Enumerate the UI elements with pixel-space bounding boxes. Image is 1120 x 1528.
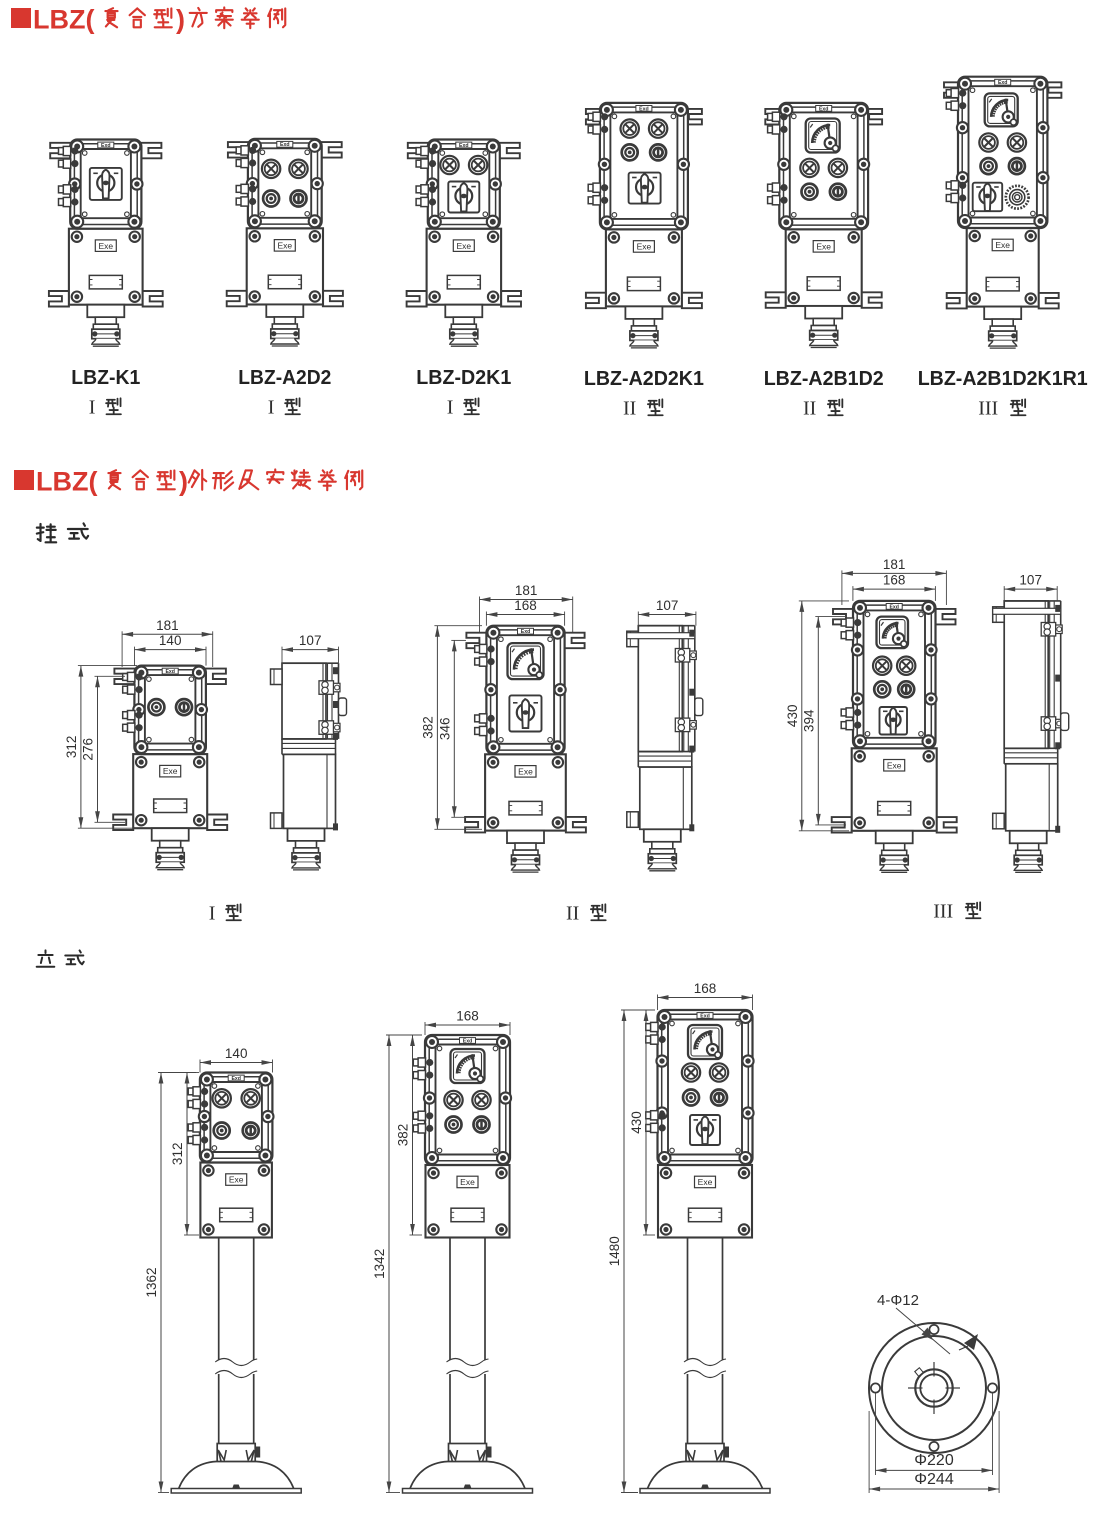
svg-text:Exd: Exd [639, 106, 649, 112]
svg-text:Exd: Exd [280, 142, 290, 148]
svg-text:LBZ(: LBZ( [36, 467, 97, 497]
svg-text:181: 181 [883, 557, 906, 572]
svg-text:430: 430 [785, 705, 800, 728]
svg-text:312: 312 [64, 736, 79, 759]
svg-text:Exe: Exe [456, 241, 471, 251]
svg-text:276: 276 [81, 738, 96, 761]
svg-text:Exd: Exd [165, 669, 175, 675]
svg-text:Exe: Exe [637, 242, 652, 252]
svg-text:346: 346 [437, 718, 452, 741]
svg-text:II: II [803, 398, 816, 420]
svg-text:I: I [268, 397, 275, 419]
svg-text:430: 430 [629, 1111, 644, 1134]
svg-text:4-Φ12: 4-Φ12 [877, 1292, 919, 1309]
svg-text:LBZ-A2D2K1: LBZ-A2D2K1 [584, 367, 704, 390]
svg-text:Exe: Exe [98, 241, 113, 251]
svg-text:312: 312 [170, 1143, 185, 1166]
svg-text:Exe: Exe [816, 241, 831, 251]
svg-text:Exe: Exe [277, 240, 292, 250]
svg-text:III: III [933, 901, 953, 923]
svg-text:168: 168 [514, 598, 537, 613]
svg-text:Exd: Exd [459, 143, 469, 149]
svg-text:Exd: Exd [998, 80, 1008, 86]
svg-text:382: 382 [420, 716, 435, 739]
svg-text:Φ220: Φ220 [914, 1452, 954, 1469]
svg-text:LBZ-A2B1D2: LBZ-A2B1D2 [764, 367, 884, 390]
svg-text:I: I [89, 397, 96, 419]
svg-text:Exd: Exd [819, 106, 829, 112]
svg-text:I: I [209, 903, 216, 925]
svg-text:LBZ-A2D2: LBZ-A2D2 [238, 366, 331, 389]
svg-text:Exe: Exe [887, 760, 902, 770]
svg-text:Exd: Exd [700, 1013, 710, 1019]
svg-text:1362: 1362 [144, 1267, 159, 1297]
svg-text:Exd: Exd [889, 604, 899, 610]
svg-text:Exe: Exe [460, 1177, 475, 1187]
svg-text:1480: 1480 [607, 1236, 622, 1266]
svg-text:Exe: Exe [995, 240, 1010, 250]
svg-text:I: I [447, 397, 454, 419]
svg-text:107: 107 [1019, 573, 1042, 588]
svg-text:): ) [179, 467, 188, 497]
svg-text:140: 140 [159, 633, 182, 648]
svg-text:107: 107 [299, 633, 322, 648]
svg-text:1342: 1342 [372, 1249, 387, 1279]
svg-text:140: 140 [225, 1046, 248, 1061]
svg-text:LBZ-A2B1D2K1R1: LBZ-A2B1D2K1R1 [918, 367, 1088, 390]
svg-text:107: 107 [656, 598, 679, 613]
svg-text:181: 181 [515, 583, 538, 598]
svg-text:LBZ-K1: LBZ-K1 [71, 366, 140, 389]
svg-text:II: II [623, 398, 636, 420]
svg-text:): ) [176, 5, 185, 35]
svg-text:II: II [566, 903, 579, 925]
svg-text:382: 382 [396, 1124, 411, 1147]
svg-text:168: 168 [883, 573, 906, 588]
svg-text:Exe: Exe [698, 1177, 713, 1187]
svg-text:Exd: Exd [231, 1076, 241, 1082]
svg-text:III: III [978, 398, 998, 420]
svg-text:168: 168 [456, 1009, 479, 1024]
svg-text:Exe: Exe [229, 1175, 244, 1185]
svg-text:394: 394 [801, 709, 816, 732]
svg-text:Exd: Exd [101, 143, 111, 149]
svg-text:Exe: Exe [163, 766, 178, 776]
svg-text:Exd: Exd [463, 1038, 473, 1044]
svg-text:Exe: Exe [518, 766, 533, 776]
svg-text:168: 168 [694, 981, 717, 996]
svg-text:LBZ-D2K1: LBZ-D2K1 [416, 366, 511, 389]
svg-text:181: 181 [156, 618, 179, 633]
svg-text:Φ244: Φ244 [914, 1471, 954, 1488]
svg-text:Exd: Exd [521, 629, 531, 635]
svg-text:LBZ(: LBZ( [33, 5, 94, 35]
